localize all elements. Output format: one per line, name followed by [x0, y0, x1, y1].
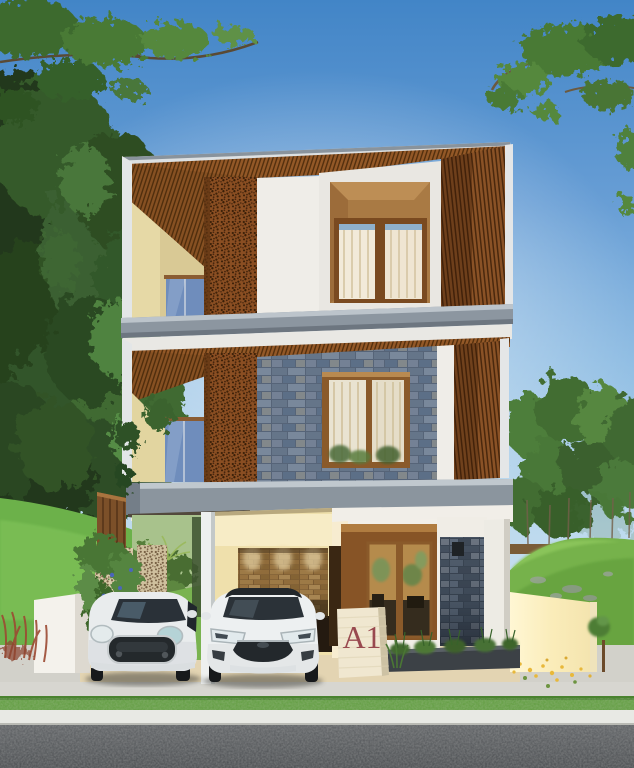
svg-text:A1: A1: [342, 619, 381, 655]
